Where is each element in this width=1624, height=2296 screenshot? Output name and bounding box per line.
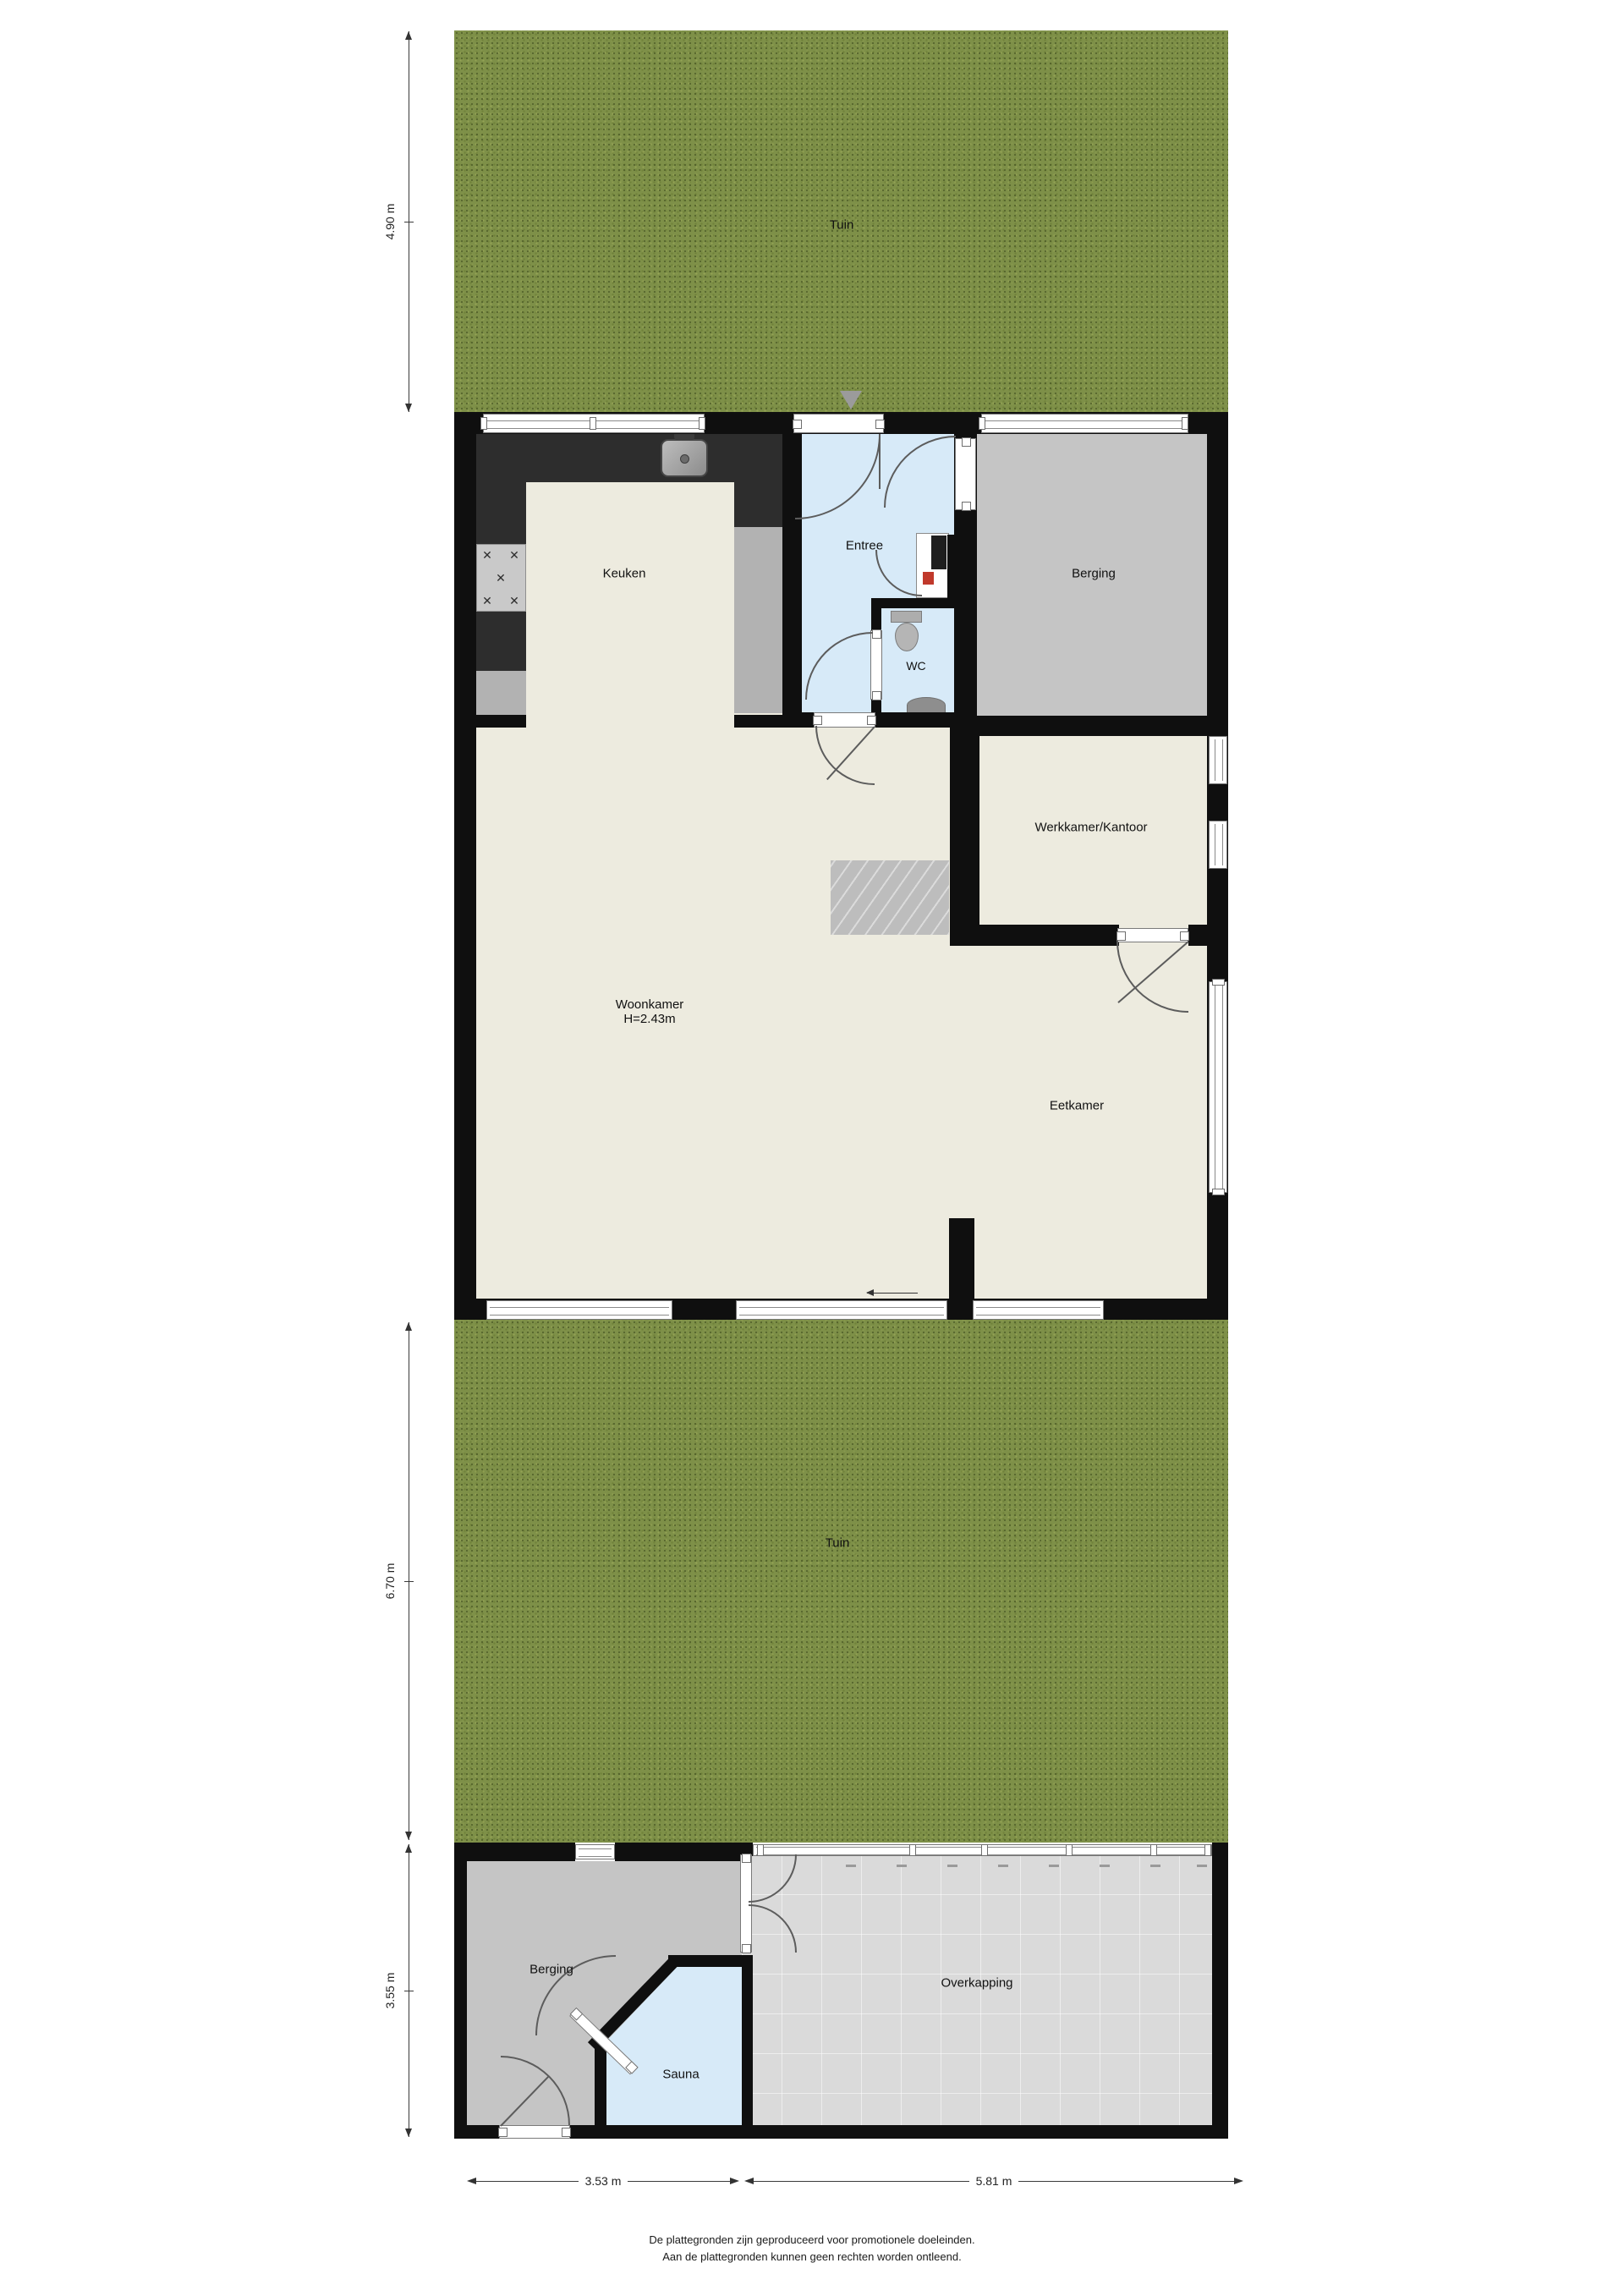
wall	[871, 608, 881, 630]
window-post	[1212, 979, 1225, 986]
garden-bottom-label: Tuin	[826, 1536, 850, 1551]
garden-bottom	[454, 1320, 1228, 1843]
canopy-post	[909, 1844, 916, 1856]
room-label-woonkamer-height: H=2.43m	[616, 1012, 684, 1026]
window	[486, 1300, 672, 1320]
room-label-wc: WC	[906, 659, 925, 673]
wall	[476, 715, 526, 728]
burner-icon	[507, 594, 521, 607]
disclaimer-line1: De plattegronden zijn geproduceerd voor …	[0, 2232, 1624, 2249]
burner-icon	[480, 548, 494, 562]
room-label-keuken: Keuken	[603, 567, 646, 581]
kitchen-counter-left2	[476, 612, 526, 671]
dimension-line	[476, 2181, 579, 2182]
door-entree-berging	[955, 438, 976, 510]
canopy-tick	[1150, 1865, 1160, 1867]
dimension-tick	[404, 1581, 414, 1582]
stairs	[831, 860, 949, 935]
front-door	[793, 414, 884, 433]
wall	[950, 722, 979, 946]
dimension-tick	[404, 1991, 414, 1991]
window	[973, 1300, 1104, 1320]
dimension-label: 6.70 m	[383, 1563, 397, 1600]
window	[1209, 981, 1227, 1193]
meter-cabinet-red-unit	[923, 572, 934, 585]
wall	[615, 1843, 742, 1861]
canopy-post	[1066, 1844, 1073, 1856]
entrance-marker-icon	[840, 391, 862, 409]
window	[1209, 736, 1227, 784]
arrow-right-icon	[730, 2178, 739, 2184]
room-label-sauna: Sauna	[662, 2068, 699, 2082]
door-leaf	[879, 435, 881, 489]
dimension-garden-top: 4.90 m	[403, 31, 416, 412]
dimension-label: 4.90 m	[383, 204, 397, 240]
canopy-tick	[947, 1865, 957, 1867]
kitchen-counter-top	[476, 434, 782, 482]
disclaimer: De plattegronden zijn geproduceerd voor …	[0, 2232, 1624, 2266]
wall	[947, 535, 977, 605]
dimension-line	[628, 2181, 730, 2182]
slide-arrow-icon	[867, 1293, 918, 1294]
wall	[1188, 925, 1228, 946]
canopy-tick	[998, 1865, 1008, 1867]
wall	[734, 715, 782, 728]
burner-icon	[494, 571, 507, 585]
arrow-left-icon	[467, 2178, 476, 2184]
window-post	[699, 417, 705, 430]
dimension-label: 3.53 m	[579, 2174, 628, 2188]
window	[1209, 821, 1227, 869]
arrow-down-icon	[405, 1832, 412, 1840]
wall	[454, 412, 476, 1320]
wall	[668, 1955, 753, 1967]
wall	[871, 700, 881, 713]
canopy-tick	[1197, 1865, 1207, 1867]
kitchen-sink	[661, 439, 708, 477]
floorplan: Tuin Tuin	[0, 0, 1624, 2296]
window-post	[590, 417, 596, 430]
window-post	[1182, 417, 1188, 430]
dimension-width-right: 5.81 m	[744, 2174, 1243, 2188]
window-post	[1212, 1189, 1225, 1195]
dimension-outbuilding: 3.55 m	[403, 1844, 416, 2137]
arrow-left-icon	[744, 2178, 754, 2184]
window-post	[979, 417, 985, 430]
wall	[1212, 1843, 1228, 2139]
door-berging-exterior	[499, 2125, 570, 2139]
garden-top-label: Tuin	[830, 218, 854, 233]
wc-basin	[907, 697, 946, 713]
disclaimer-line2: Aan de plattegronden kunnen geen rechten…	[0, 2249, 1624, 2266]
window	[981, 414, 1188, 433]
burner-icon	[507, 548, 521, 562]
room-label-berging-bottom: Berging	[529, 1963, 573, 1977]
kitchen-counter-left	[476, 482, 526, 544]
wall	[954, 716, 1228, 736]
room-label-werkkamer: Werkkamer/Kantoor	[1034, 821, 1147, 835]
arrow-down-icon	[405, 404, 412, 412]
window	[575, 1844, 615, 1859]
toilet-tank	[891, 611, 922, 623]
arrow-right-icon	[1234, 2178, 1243, 2184]
room-label-woonkamer-name: Woonkamer	[616, 997, 684, 1012]
arrow-up-icon	[405, 31, 412, 40]
wall	[949, 1218, 974, 1320]
canopy-post	[1150, 1844, 1157, 1856]
dimension-line	[1018, 2181, 1234, 2182]
wall	[742, 1955, 753, 2125]
kitchen-counter-left3	[476, 671, 526, 717]
window-post	[480, 417, 487, 430]
wall	[950, 925, 1119, 946]
dimension-line	[754, 2181, 969, 2182]
wall	[871, 598, 954, 608]
arrow-down-icon	[405, 2128, 412, 2137]
room-label-woonkamer: Woonkamer H=2.43m	[616, 997, 684, 1026]
room-label-entree: Entree	[846, 539, 883, 553]
room-label-eetkamer: Eetkamer	[1050, 1099, 1104, 1113]
room-label-overkapping: Overkapping	[941, 1976, 1012, 1991]
dimension-label: 5.81 m	[969, 2174, 1019, 2188]
arrow-up-icon	[405, 1322, 412, 1331]
room-label-berging-top: Berging	[1072, 567, 1116, 581]
dimension-tick	[404, 222, 414, 222]
meter-cabinet-panel	[931, 536, 946, 569]
kitchen-counter-right	[734, 527, 782, 713]
stove	[476, 544, 526, 612]
dimension-label: 3.55 m	[383, 1973, 397, 2009]
dimension-width-left: 3.53 m	[467, 2174, 739, 2188]
burner-icon	[480, 594, 494, 607]
wall	[782, 712, 977, 728]
canopy-tick	[846, 1865, 856, 1867]
wall	[595, 2041, 606, 2125]
canopy-post	[981, 1844, 988, 1856]
wall	[454, 1843, 575, 1861]
dimension-garden-bottom: 6.70 m	[403, 1322, 416, 1840]
canopy-post	[1204, 1844, 1211, 1856]
canopy-tick	[897, 1865, 907, 1867]
canopy-tick	[1100, 1865, 1110, 1867]
wall	[454, 1843, 467, 2139]
kitchen-counter-right-dark	[734, 482, 782, 527]
sliding-door	[736, 1300, 947, 1320]
canopy-tick	[1049, 1865, 1059, 1867]
arrow-up-icon	[405, 1844, 412, 1853]
